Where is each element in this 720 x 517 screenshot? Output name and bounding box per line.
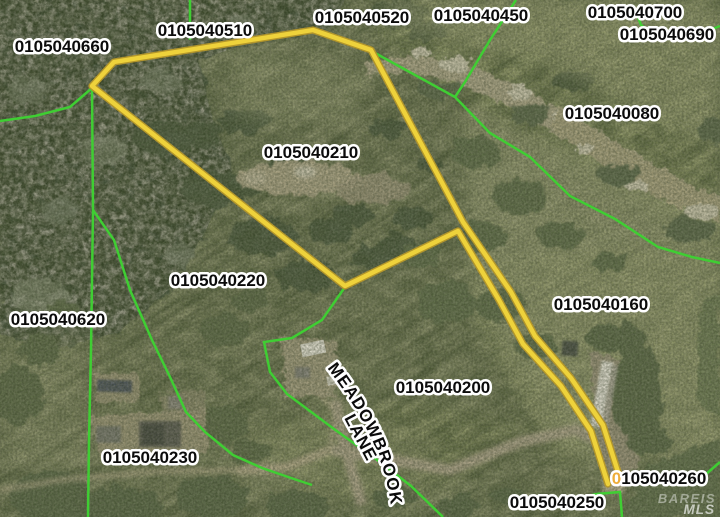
svg-text:0105040250: 0105040250 — [510, 493, 605, 512]
svg-text:0105040230: 0105040230 — [103, 448, 198, 467]
svg-text:MLS: MLS — [684, 502, 716, 517]
svg-text:0105040700: 0105040700 — [588, 3, 683, 22]
svg-text:0105040660: 0105040660 — [15, 37, 110, 56]
svg-text:0105040620: 0105040620 — [11, 310, 106, 329]
svg-text:0105040690: 0105040690 — [620, 25, 715, 44]
svg-text:0105040260: 0105040260 — [612, 469, 707, 488]
svg-text:0105040220: 0105040220 — [171, 271, 266, 290]
svg-text:0105040210: 0105040210 — [264, 143, 359, 162]
svg-text:0105040450: 0105040450 — [434, 6, 529, 25]
svg-text:0105040080: 0105040080 — [565, 104, 660, 123]
svg-text:0105040510: 0105040510 — [158, 21, 253, 40]
svg-text:0105040160: 0105040160 — [554, 295, 649, 314]
svg-text:0105040200: 0105040200 — [396, 378, 491, 397]
svg-text:0105040520: 0105040520 — [315, 8, 410, 27]
